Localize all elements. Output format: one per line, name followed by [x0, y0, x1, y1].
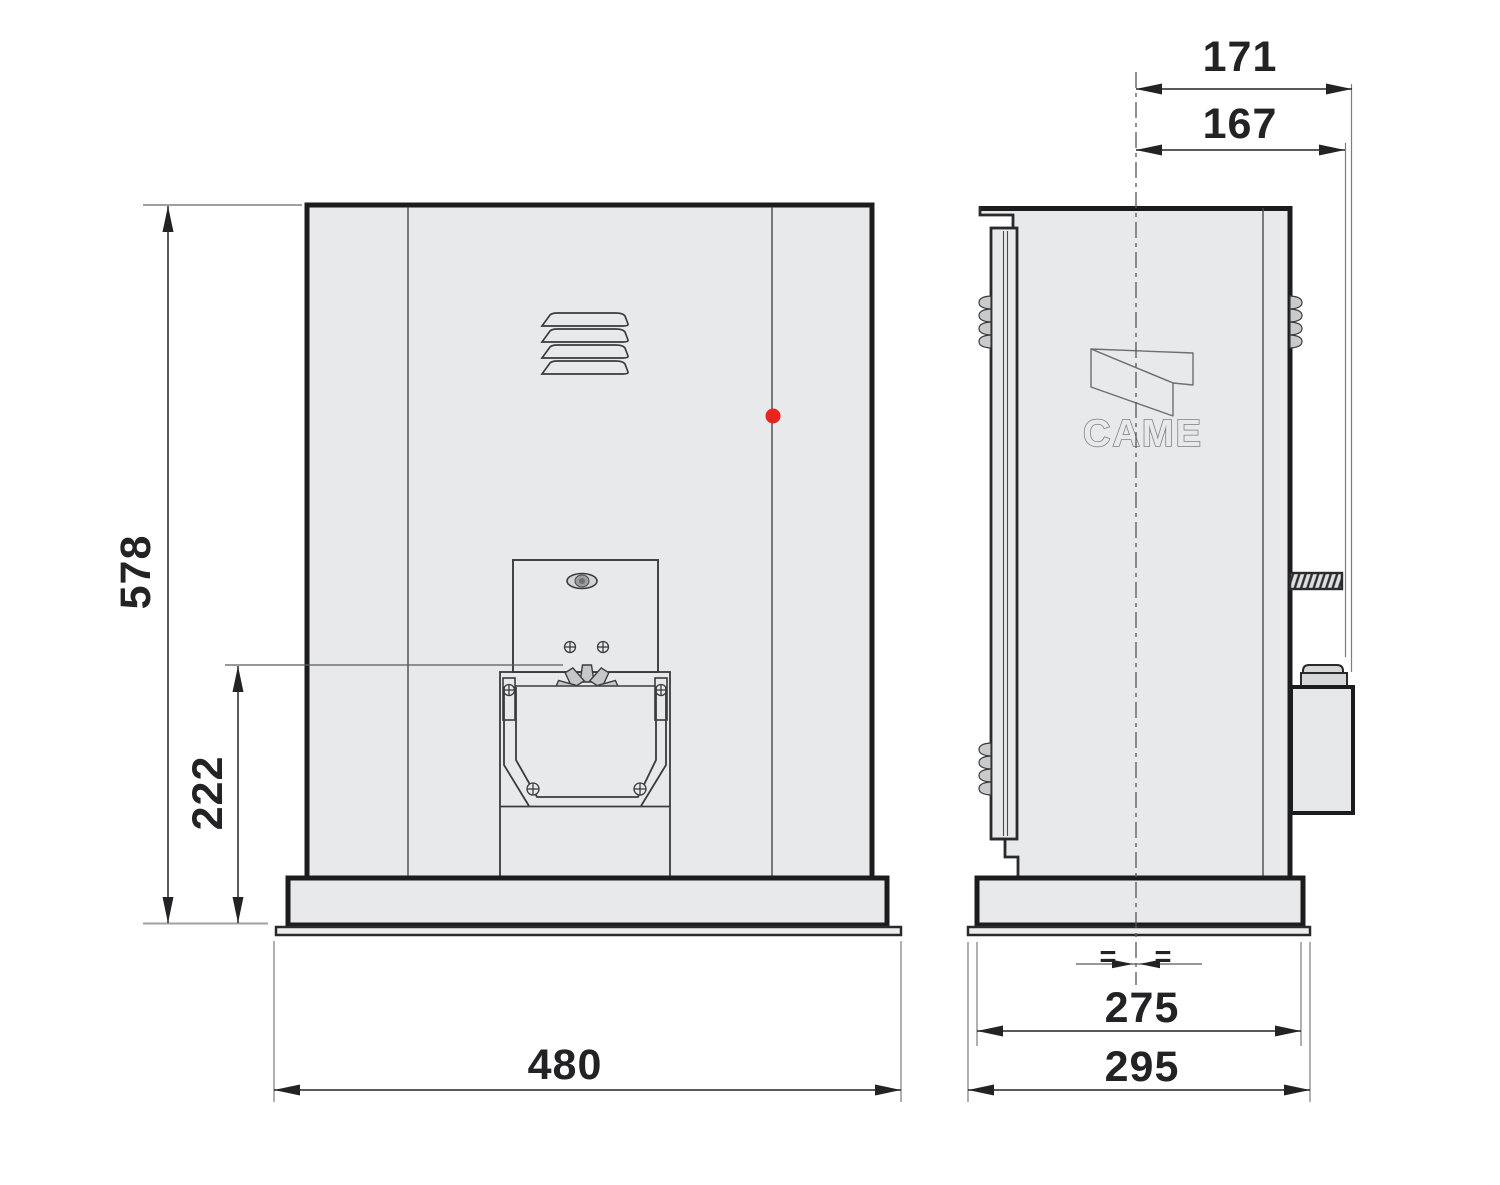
equal-mark-right: =: [1155, 941, 1172, 973]
side-base-plate: [968, 927, 1310, 935]
vent-slat: [542, 329, 628, 342]
side-louvers-left-top: [979, 296, 991, 348]
dim-label-171: 171: [1203, 33, 1278, 81]
red-indicator-dot: [766, 409, 781, 424]
dimension-overall-width: 480: [274, 941, 901, 1102]
came-logo-text: CAME: [1083, 413, 1203, 455]
release-housing-box: [1291, 687, 1353, 813]
front-base-block: [288, 878, 887, 925]
dim-label-222: 222: [184, 756, 232, 831]
dim-label-167: 167: [1203, 100, 1278, 148]
release-knob: [1301, 665, 1347, 687]
dimension-base-width: 275: [977, 942, 1301, 1046]
side-housing-silhouette: [980, 206, 1290, 878]
side-louvers-right: [1290, 296, 1302, 348]
side-louvers-left-bottom: [979, 743, 991, 795]
dim-label-578: 578: [112, 535, 160, 610]
front-view: [276, 205, 901, 935]
vent-slat: [542, 313, 628, 326]
dim-label-480: 480: [528, 1041, 603, 1089]
vent-slat: [542, 361, 628, 374]
front-base-plate: [276, 927, 901, 935]
dim-label-295: 295: [1105, 1043, 1180, 1091]
release-key-lock: [567, 574, 597, 589]
threaded-release-shaft: [1290, 573, 1342, 589]
vent-slat: [542, 345, 628, 358]
side-view: CAME: [968, 72, 1353, 985]
equal-mark-left: =: [1100, 941, 1117, 973]
equal-spacing-callout: = =: [1076, 941, 1202, 973]
technical-drawing-canvas: CAME 578 222: [0, 0, 1500, 1185]
side-base-block: [977, 878, 1303, 925]
dim-label-275: 275: [1105, 984, 1180, 1032]
